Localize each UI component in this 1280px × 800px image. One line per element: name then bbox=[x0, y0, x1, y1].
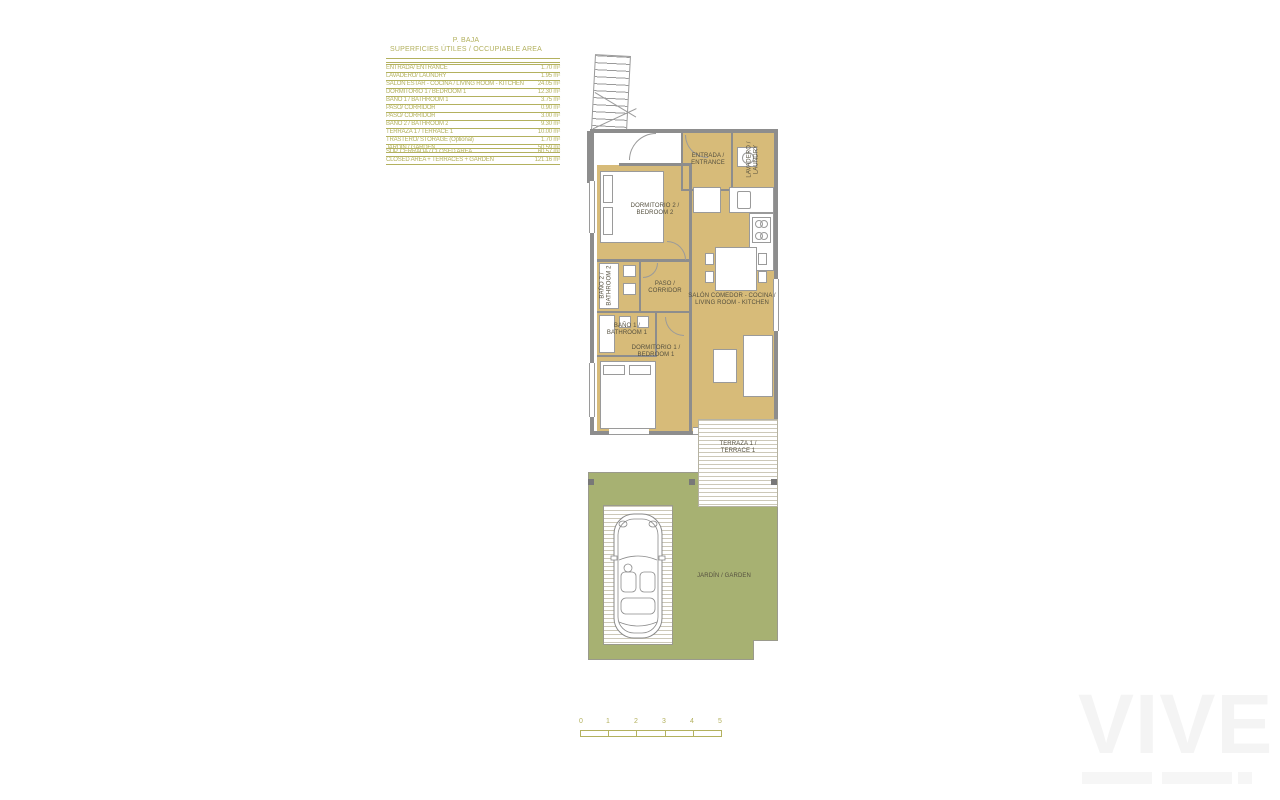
scale-tick: 4 bbox=[687, 718, 697, 725]
scale-tick: 1 bbox=[603, 718, 613, 725]
row-label: BAÑO 1 / BATHROOM 1 bbox=[386, 97, 448, 104]
table-row: ENTRADA/ ENTRANCE1.70 m² bbox=[386, 65, 560, 73]
label-dormitorio-1: DORMITORIO 1 / BEDROOM 1 bbox=[625, 345, 687, 358]
plan-subtitle: SUPERFICIES ÚTILES / OCCUPIABLE AREA bbox=[368, 45, 564, 54]
sink-icon bbox=[737, 191, 751, 209]
scale-tick: 0 bbox=[576, 718, 586, 725]
kitchen-counter bbox=[693, 187, 721, 213]
pillow bbox=[629, 365, 651, 375]
row-label: PASO/ CORRIDOR bbox=[386, 113, 435, 120]
row-value: 121.16 m² bbox=[535, 157, 560, 164]
label-line: LAUNDRY bbox=[753, 132, 760, 188]
stairs bbox=[591, 54, 631, 132]
table-row: PASO/ CORRIDOR0.90 m² bbox=[386, 105, 560, 113]
post bbox=[771, 479, 777, 485]
wall bbox=[619, 163, 692, 166]
label-paso: PASO / CORRIDOR bbox=[638, 281, 692, 294]
parking-pad bbox=[603, 505, 673, 645]
label-terraza: TERRAZA 1 / TERRACE 1 bbox=[703, 441, 773, 454]
coffee-table bbox=[713, 349, 737, 383]
row-value: 3.00 m² bbox=[541, 113, 560, 120]
table-row: LAVADERO/ LAUNDRY1.95 m² bbox=[386, 73, 560, 81]
chair bbox=[758, 271, 767, 283]
car-icon bbox=[610, 510, 666, 642]
stove-icon bbox=[752, 217, 771, 243]
sofa bbox=[743, 335, 773, 397]
label-bano-2: BAÑO 2 / BATHROOM 2 bbox=[600, 256, 613, 316]
stairs-cut-line bbox=[595, 92, 637, 118]
page-title: P. BAJA SUPERFICIES ÚTILES / OCCUPIABLE … bbox=[368, 36, 564, 54]
summary-row: CLOSED AREA + TERRACES + GARDEN121.16 m² bbox=[386, 157, 560, 165]
row-value: 3.75 m² bbox=[541, 97, 560, 104]
post bbox=[689, 479, 695, 485]
label-line: JARDÍN / GARDEN bbox=[681, 573, 767, 580]
washbasin-icon bbox=[623, 283, 636, 295]
row-label: LAVADERO/ LAUNDRY bbox=[386, 73, 446, 80]
wall bbox=[731, 133, 733, 191]
chair bbox=[705, 271, 714, 283]
chair bbox=[758, 253, 767, 265]
row-value: 9.30 m² bbox=[541, 121, 560, 128]
scale-tick: 5 bbox=[715, 718, 725, 725]
table-row: TRASTERO/ STORAGE (Optional)1.70 m² bbox=[386, 137, 560, 145]
label-line: ENTRADA / bbox=[685, 153, 731, 160]
floor-plan-drawing: TRASTERO / STORAGE bbox=[585, 55, 785, 667]
row-label: CLOSED AREA + TERRACES + GARDEN bbox=[386, 157, 494, 164]
post bbox=[588, 479, 594, 485]
scale-ruler bbox=[580, 730, 722, 737]
row-value: 0.90 m² bbox=[541, 105, 560, 112]
scale-tick: 2 bbox=[631, 718, 641, 725]
pillow bbox=[603, 365, 625, 375]
row-label: TERRAZA 1 / TERRACE 1 bbox=[386, 129, 453, 136]
pillow bbox=[603, 175, 613, 203]
label-line: TERRACE 1 bbox=[703, 448, 773, 455]
row-label: BAÑO 2 / BATHROOM 2 bbox=[386, 121, 448, 128]
row-value: 1.95 m² bbox=[541, 73, 560, 80]
window bbox=[589, 363, 595, 417]
table-row: TERRAZA 1 / TERRACE 110.00 m² bbox=[386, 129, 560, 137]
dining-table bbox=[715, 247, 757, 291]
label-line: BEDROOM 1 bbox=[625, 352, 687, 359]
row-label: TRASTERO/ STORAGE (Optional) bbox=[386, 137, 474, 144]
scale-tick: 3 bbox=[659, 718, 669, 725]
label-line: DORMITORIO 1 / bbox=[625, 345, 687, 352]
label-line: ENTRANCE bbox=[685, 160, 731, 167]
table-row: PASO/ CORRIDOR3.00 m² bbox=[386, 113, 560, 121]
title-rule bbox=[386, 58, 560, 63]
window bbox=[589, 181, 595, 233]
floor-plan-page: P. BAJA SUPERFICIES ÚTILES / OCCUPIABLE … bbox=[0, 0, 1280, 800]
label-bano-1: BAÑO 1 / BATHROOM 1 bbox=[599, 323, 655, 336]
wall bbox=[689, 319, 692, 431]
label-lavadero: LAVADERO / LAUNDRY bbox=[747, 132, 760, 188]
row-value: 24.05 m² bbox=[538, 81, 560, 88]
label-line: LIVING ROOM - KITCHEN bbox=[686, 300, 778, 307]
row-label: DORMITORIO 1 / BEDROOM 1 bbox=[386, 89, 466, 96]
row-value: 12.30 m² bbox=[538, 89, 560, 96]
row-value: 1.70 m² bbox=[541, 137, 560, 144]
label-salon: SALÓN COMEDOR - COCINA / LIVING ROOM - K… bbox=[686, 293, 778, 306]
pillow bbox=[603, 207, 613, 235]
scale-bar: 0 1 2 3 4 5 bbox=[580, 718, 722, 742]
plan-level-title: P. BAJA bbox=[368, 36, 564, 45]
toilet-icon bbox=[623, 265, 636, 277]
kitchen-counter bbox=[729, 187, 774, 213]
areas-table: ENTRADA/ ENTRANCE1.70 m² LAVADERO/ LAUND… bbox=[386, 64, 560, 153]
row-value: 60.57 m² bbox=[538, 149, 560, 156]
table-row: DORMITORIO 1 / BEDROOM 112.30 m² bbox=[386, 89, 560, 97]
garden-notch bbox=[753, 640, 778, 660]
label-jardin: JARDÍN / GARDEN bbox=[681, 573, 767, 580]
chair bbox=[705, 253, 714, 265]
row-label: SUP. CERRADA / CLOSED AREA bbox=[386, 149, 472, 156]
label-line: BATHROOM 2 bbox=[606, 256, 613, 316]
areas-summary: SUP. CERRADA / CLOSED AREA60.57 m² CLOSE… bbox=[386, 148, 560, 165]
wall bbox=[681, 133, 683, 191]
label-entrada: ENTRADA / ENTRANCE bbox=[685, 153, 731, 166]
terrace-area bbox=[698, 419, 778, 507]
label-line: SALÓN COMEDOR - COCINA / bbox=[686, 293, 778, 300]
table-row: BAÑO 2 / BATHROOM 29.30 m² bbox=[386, 121, 560, 129]
label-line: CORRIDOR bbox=[638, 288, 692, 295]
row-value: 1.70 m² bbox=[541, 65, 560, 72]
row-label: SALÓN ESTAR - COCINA / LIVING ROOM - KIT… bbox=[386, 81, 524, 88]
watermark-tagline bbox=[1082, 772, 1252, 784]
table-row: SALÓN ESTAR - COCINA / LIVING ROOM - KIT… bbox=[386, 81, 560, 89]
label-line: BEDROOM 2 bbox=[615, 210, 695, 217]
label-line: BATHROOM 1 bbox=[599, 330, 655, 337]
row-label: ENTRADA/ ENTRANCE bbox=[386, 65, 448, 72]
label-dormitorio-2: DORMITORIO 2 / BEDROOM 2 bbox=[615, 203, 695, 216]
watermark-logo: VIVE bbox=[1078, 682, 1273, 766]
table-row: BAÑO 1 / BATHROOM 13.75 m² bbox=[386, 97, 560, 105]
row-label: PASO/ CORRIDOR bbox=[386, 105, 435, 112]
summary-row: SUP. CERRADA / CLOSED AREA60.57 m² bbox=[386, 149, 560, 157]
scale-numbers: 0 1 2 3 4 5 bbox=[580, 718, 722, 728]
row-value: 10.00 m² bbox=[538, 129, 560, 136]
